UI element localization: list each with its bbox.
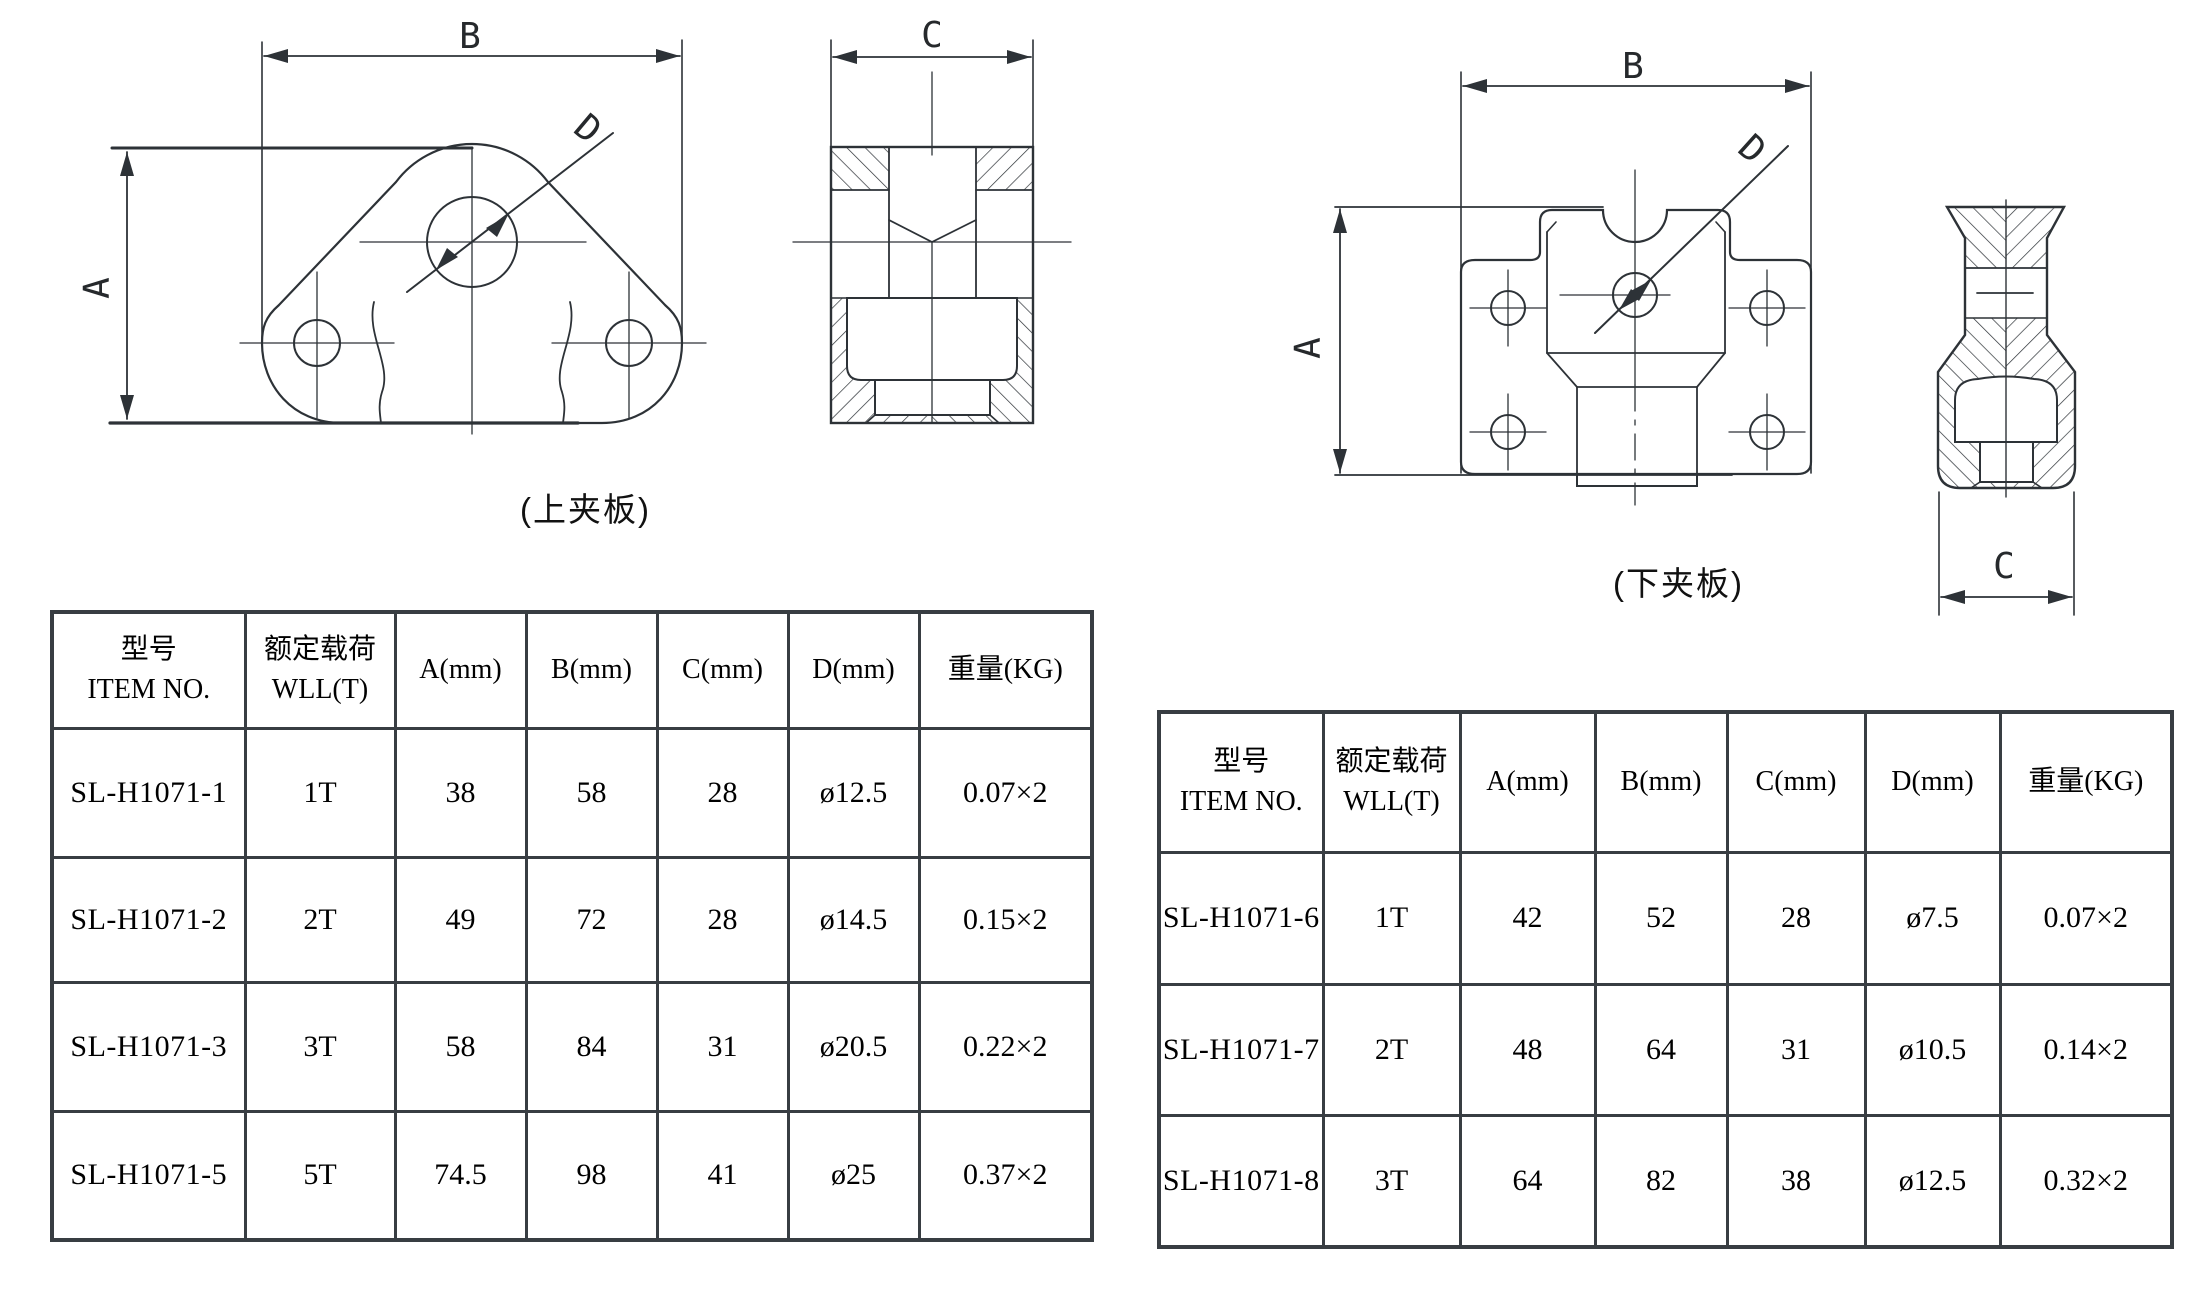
table-header-row: 型号 ITEM NO. 额定载荷 WLL(T) A(mm) B(mm) C(mm… [1159,712,2172,852]
cell-b: 52 [1595,852,1727,984]
cell-b: 58 [526,728,657,857]
cell-item-no: SL-H1071-6 [1159,852,1323,984]
col-header-wll: 额定载荷 WLL(T) [245,612,395,728]
cell-weight: 0.22×2 [919,982,1092,1111]
cell-d: ø14.5 [788,857,919,982]
col-header-weight: 重量(KG) [919,612,1092,728]
cell-a: 64 [1460,1115,1595,1247]
table-row: SL-H1071-8 3T 64 82 38 ø12.5 0.32×2 [1159,1115,2172,1247]
cell-item-no: SL-H1071-2 [52,857,245,982]
cell-a: 49 [395,857,526,982]
cell-d: ø7.5 [1865,852,2000,984]
upper-clamp-section-view: C [790,0,1120,480]
cell-a: 74.5 [395,1111,526,1240]
cell-c: 28 [657,857,788,982]
cell-d: ø12.5 [788,728,919,857]
col-header-a: A(mm) [395,612,526,728]
cell-wll: 2T [245,857,395,982]
cell-c: 38 [1727,1115,1865,1247]
table-row: SL-H1071-7 2T 48 64 31 ø10.5 0.14×2 [1159,984,2172,1115]
cell-weight: 0.07×2 [919,728,1092,857]
cell-weight: 0.37×2 [919,1111,1092,1240]
cell-c: 31 [1727,984,1865,1115]
cell-b: 98 [526,1111,657,1240]
col-header-b: B(mm) [526,612,657,728]
lower-clamp-section-view: C [1900,150,2207,650]
table-row: SL-H1071-2 2T 49 72 28 ø14.5 0.15×2 [52,857,1092,982]
cell-d: ø12.5 [1865,1115,2000,1247]
col-header-d: D(mm) [1865,712,2000,852]
cell-d: ø25 [788,1111,919,1240]
col-header-wll: 额定载荷 WLL(T) [1323,712,1460,852]
cell-wll: 2T [1323,984,1460,1115]
cell-c: 28 [657,728,788,857]
cell-c: 31 [657,982,788,1111]
table-header-row: 型号 ITEM NO. 额定载荷 WLL(T) A(mm) B(mm) C(mm… [52,612,1092,728]
cell-weight: 0.07×2 [2000,852,2172,984]
dim-label-a: A [77,277,118,299]
cell-wll: 3T [1323,1115,1460,1247]
cell-item-no: SL-H1071-8 [1159,1115,1323,1247]
col-header-d: D(mm) [788,612,919,728]
dim-label-c: C [1993,546,2015,587]
cell-weight: 0.32×2 [2000,1115,2172,1247]
table-row: SL-H1071-3 3T 58 84 31 ø20.5 0.22×2 [52,982,1092,1111]
cell-d: ø10.5 [1865,984,2000,1115]
table-row: SL-H1071-5 5T 74.5 98 41 ø25 0.37×2 [52,1111,1092,1240]
cell-b: 84 [526,982,657,1111]
cell-item-no: SL-H1071-1 [52,728,245,857]
cell-wll: 1T [1323,852,1460,984]
col-header-c: C(mm) [1727,712,1865,852]
cell-c: 41 [657,1111,788,1240]
table-row: SL-H1071-1 1T 38 58 28 ø12.5 0.07×2 [52,728,1092,857]
col-header-a: A(mm) [1460,712,1595,852]
cell-b: 64 [1595,984,1727,1115]
cell-wll: 5T [245,1111,395,1240]
lower-clamp-spec-table: 型号 ITEM NO. 额定载荷 WLL(T) A(mm) B(mm) C(mm… [1157,710,2174,1249]
cell-weight: 0.14×2 [2000,984,2172,1115]
lower-clamp-caption: (下夹板) [1613,557,1744,605]
dim-label-b: B [1622,46,1644,87]
cell-d: ø20.5 [788,982,919,1111]
lower-clamp-front-view: B A D [1290,30,1860,550]
dim-label-d: D [566,107,609,152]
cell-b: 82 [1595,1115,1727,1247]
cell-item-no: SL-H1071-3 [52,982,245,1111]
cell-item-no: SL-H1071-5 [52,1111,245,1240]
dim-label-b: B [459,16,481,57]
cell-a: 48 [1460,984,1595,1115]
cell-weight: 0.15×2 [919,857,1092,982]
cell-b: 72 [526,857,657,982]
col-header-b: B(mm) [1595,712,1727,852]
upper-clamp-caption: (上夹板) [520,483,651,531]
cell-a: 38 [395,728,526,857]
upper-clamp-front-view: B A D [60,0,720,530]
dim-label-a: A [1290,337,1329,359]
col-header-weight: 重量(KG) [2000,712,2172,852]
col-header-item-no: 型号 ITEM NO. [52,612,245,728]
upper-clamp-spec-table: 型号 ITEM NO. 额定载荷 WLL(T) A(mm) B(mm) C(mm… [50,610,1094,1242]
table-row: SL-H1071-6 1T 42 52 28 ø7.5 0.07×2 [1159,852,2172,984]
cell-a: 58 [395,982,526,1111]
technical-drawing-sheet: B A D (上夹板) [0,0,2207,1299]
dimension-arrows [1333,79,1809,473]
col-header-c: C(mm) [657,612,788,728]
cell-wll: 3T [245,982,395,1111]
col-header-item-no: 型号 ITEM NO. [1159,712,1323,852]
cell-wll: 1T [245,728,395,857]
dim-label-c: C [921,15,943,56]
cell-c: 28 [1727,852,1865,984]
cell-item-no: SL-H1071-7 [1159,984,1323,1115]
cell-a: 42 [1460,852,1595,984]
